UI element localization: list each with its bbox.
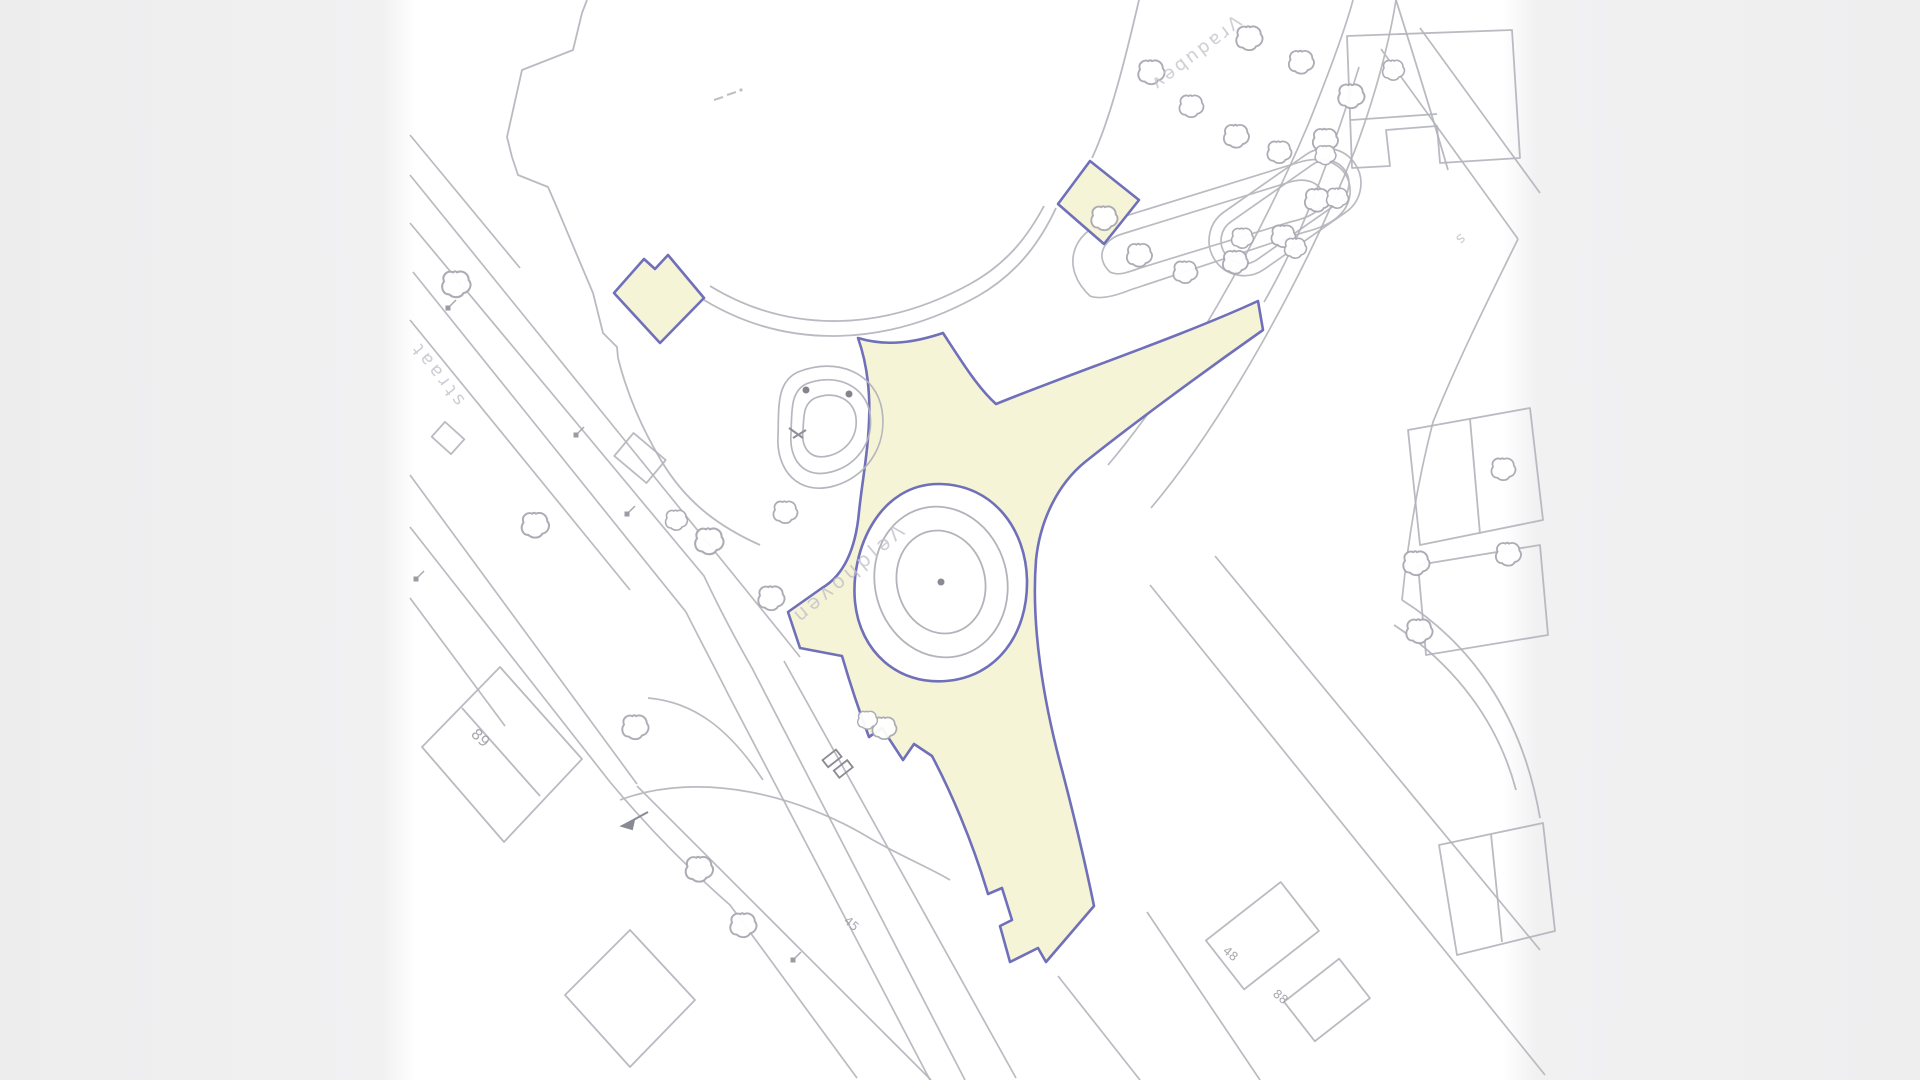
street-label-top-right: ʌǝqnpɐɹΛ — [1147, 10, 1248, 93]
highlight-area-main-junction — [788, 301, 1263, 962]
ne-curved-roads — [1108, 0, 1540, 600]
small-s-label: s — [1452, 230, 1470, 249]
highlight-patch-upper-left — [614, 255, 704, 343]
buildings — [422, 30, 1555, 1067]
map-canvas[interactable]: ʇɐɐɹʇs uǝʌoɥplǝΛ ʌǝqnpɐɹΛ s 89 45 48 88 — [0, 0, 1920, 1080]
plaza-tiny-mark — [714, 88, 743, 100]
highlight-patch-upper-right — [1058, 161, 1139, 244]
roundabout-island — [858, 492, 1025, 673]
house-number: 89 — [467, 725, 493, 751]
house-number: 48 — [1220, 944, 1241, 965]
bus-stop-symbol — [823, 750, 853, 778]
street-label-left: ʇɐɐɹʇs — [409, 339, 473, 412]
se-right-street-lines — [1058, 556, 1545, 1080]
plaza-edge-arcs — [704, 206, 1056, 336]
highlight-areas — [614, 161, 1263, 962]
house-number: 88 — [1270, 987, 1291, 1008]
map-viewer: ʇɐɐɹʇs uǝʌoɥplǝΛ ʌǝqnpɐɹΛ s 89 45 48 88 — [0, 0, 1920, 1080]
nw-street-lines — [410, 135, 1016, 1080]
